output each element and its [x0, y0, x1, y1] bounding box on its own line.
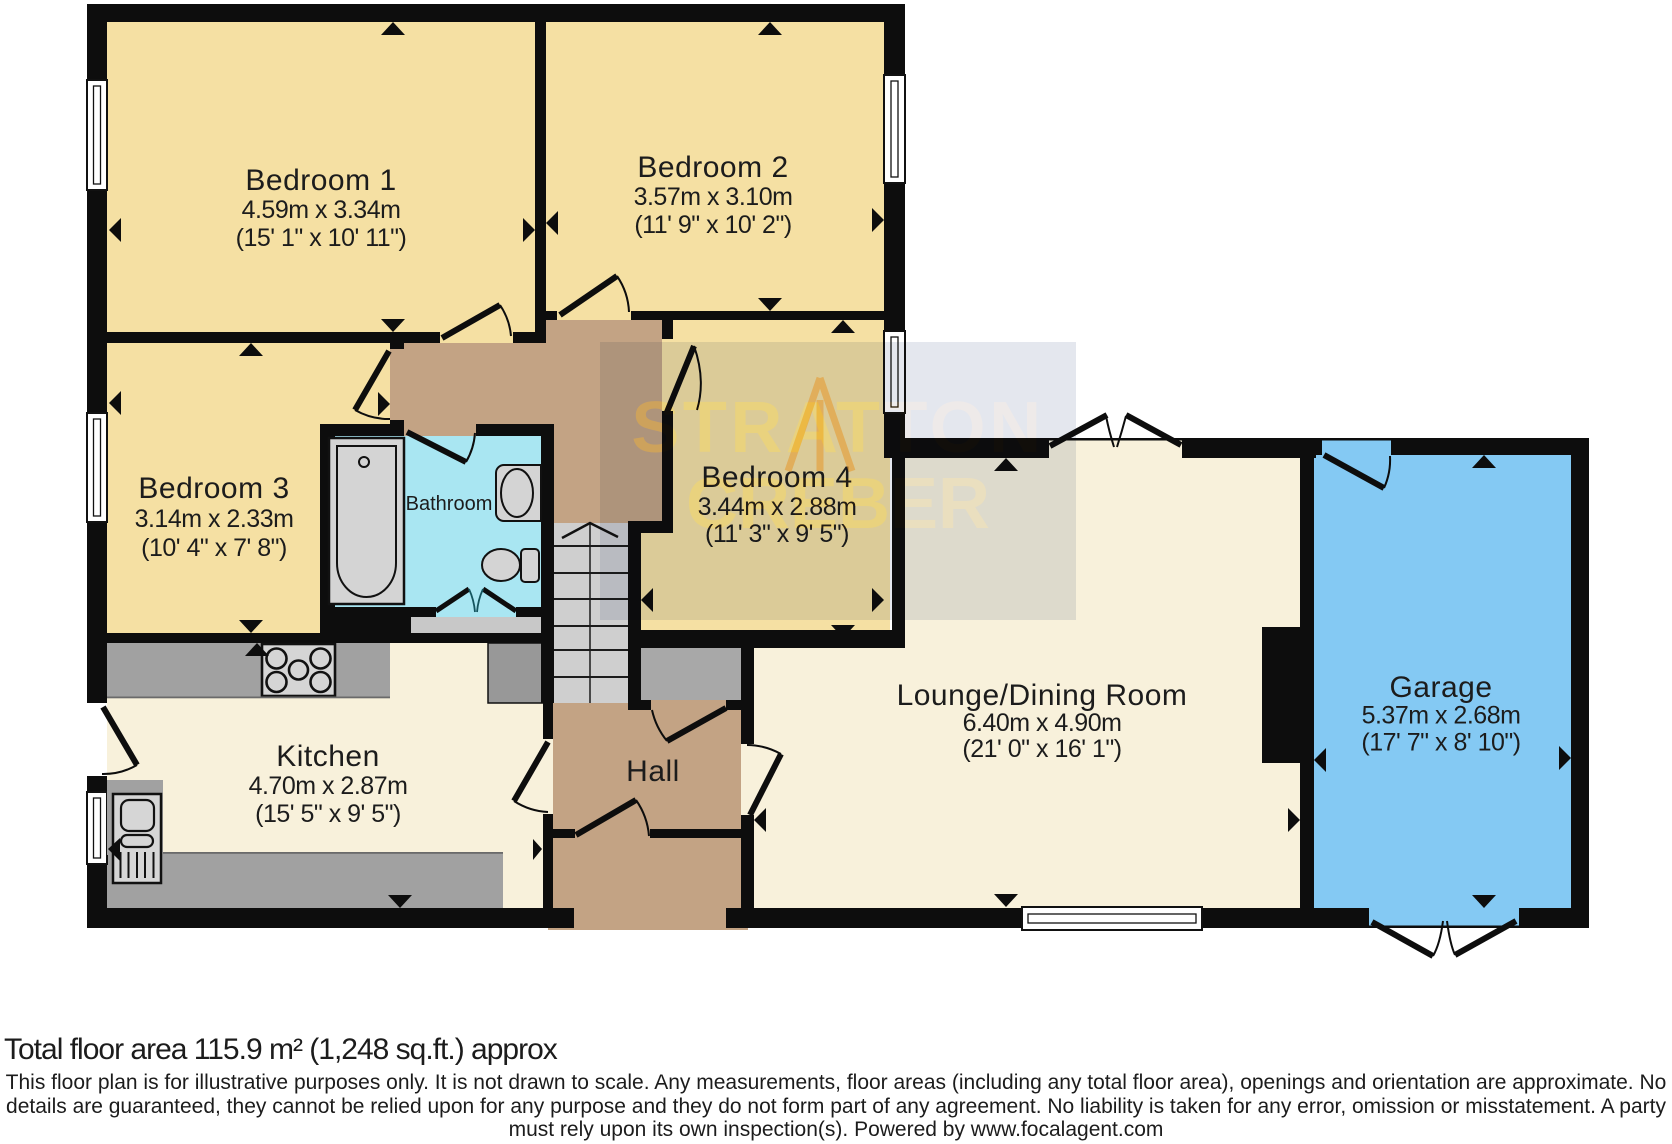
svg-text:This floor plan is for illustr: This floor plan is for illustrative purp… [6, 1071, 1667, 1094]
svg-text:(10' 4" x 7' 8"): (10' 4" x 7' 8") [141, 534, 287, 562]
svg-text:must rely upon its own inspect: must rely upon its own inspection(s). Po… [509, 1118, 1164, 1141]
svg-text:Lounge/Dining Room: Lounge/Dining Room [897, 679, 1188, 712]
svg-text:details are guaranteed, they c: details are guaranteed, they cannot be r… [6, 1095, 1666, 1118]
svg-text:3.57m x 3.10m: 3.57m x 3.10m [634, 183, 793, 211]
svg-text:(15' 5" x 9' 5"): (15' 5" x 9' 5") [255, 800, 401, 828]
svg-text:Bedroom 1: Bedroom 1 [245, 164, 396, 197]
svg-text:Bedroom 3: Bedroom 3 [138, 472, 289, 505]
svg-text:Bathroom: Bathroom [406, 493, 493, 515]
svg-text:Bedroom 2: Bedroom 2 [637, 151, 788, 184]
svg-text:4.59m x 3.34m: 4.59m x 3.34m [242, 196, 401, 224]
svg-text:Kitchen: Kitchen [276, 740, 380, 773]
svg-text:Hall: Hall [626, 755, 680, 788]
svg-text:4.70m x 2.87m: 4.70m x 2.87m [249, 772, 408, 800]
svg-text:(21' 0" x 16' 1"): (21' 0" x 16' 1") [962, 735, 1121, 763]
svg-text:(15' 1" x 10' 11"): (15' 1" x 10' 11") [236, 224, 407, 252]
svg-text:Total floor area 115.9 m² (1,2: Total floor area 115.9 m² (1,248 sq.ft.)… [4, 1033, 558, 1066]
svg-text:6.40m x 4.90m: 6.40m x 4.90m [963, 709, 1122, 737]
svg-text:Garage: Garage [1389, 671, 1492, 704]
svg-text:(17' 7" x 8' 10"): (17' 7" x 8' 10") [1361, 729, 1520, 757]
svg-text:(11' 9" x 10' 2"): (11' 9" x 10' 2") [634, 211, 791, 239]
svg-text:5.37m x 2.68m: 5.37m x 2.68m [1362, 702, 1521, 730]
svg-text:3.14m x 2.33m: 3.14m x 2.33m [135, 505, 294, 533]
